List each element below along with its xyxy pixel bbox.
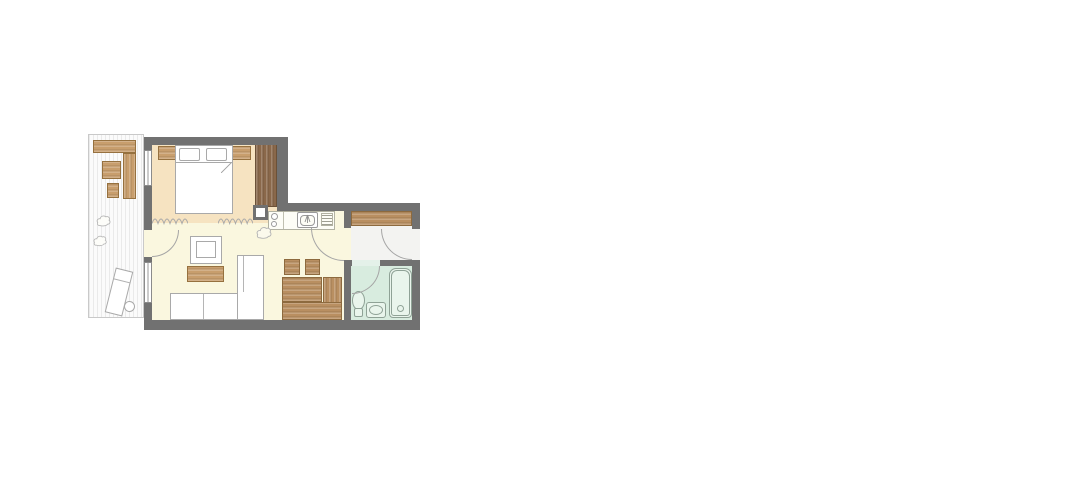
wall-hall-upper <box>344 211 351 228</box>
sofa-seat <box>170 293 238 320</box>
floorplan-canvas <box>0 0 1070 477</box>
balcony-side-unit <box>123 153 136 199</box>
wall-bottom <box>144 320 420 330</box>
pillow-right <box>206 148 227 161</box>
dining-bench-bottom <box>282 302 342 320</box>
hall-door-threshold <box>344 228 351 261</box>
sofa-cushion-line <box>203 294 204 319</box>
service-column-shaft <box>256 208 265 217</box>
plant-icon <box>96 214 112 228</box>
bedroom-wardrobe <box>255 144 277 207</box>
wall-hall-lower <box>344 261 351 320</box>
dining-chair <box>284 259 300 275</box>
dining-chair <box>305 259 320 275</box>
plant-icon <box>256 225 273 241</box>
lounger-headrest-line <box>114 278 130 283</box>
chaise-cushion-line <box>243 256 244 292</box>
wall-bath-divider-right <box>380 260 412 266</box>
wall-left-upper <box>144 137 152 150</box>
duvet-fold <box>221 162 232 173</box>
lounger-side-table <box>124 301 135 312</box>
wall-bedroom-right <box>277 145 288 203</box>
curtain-divider-left <box>152 217 188 225</box>
dining-table <box>282 277 322 302</box>
dish-drainer <box>321 213 333 226</box>
hall-wardrobe <box>351 211 412 226</box>
curtain-divider-right <box>218 217 253 225</box>
coffee-table <box>187 266 224 282</box>
armchair-seat <box>196 241 216 258</box>
counter-divider <box>283 212 284 229</box>
cooktop-burner <box>271 213 278 220</box>
wall-top-right-section <box>277 203 420 211</box>
bathtub-drain <box>397 305 404 312</box>
entrance-door-threshold <box>412 229 420 260</box>
wall-right-upper <box>412 211 420 229</box>
wall-top-bedroom <box>144 137 288 145</box>
sofa-chaise <box>237 255 264 320</box>
wall-left-mid <box>144 186 152 230</box>
living-room-window <box>144 262 152 303</box>
balcony-table <box>102 161 121 179</box>
bedroom-window <box>144 150 152 186</box>
balcony-stool <box>107 183 119 198</box>
balcony-door-threshold <box>144 230 152 257</box>
plant-icon <box>93 234 108 248</box>
balcony-bench <box>93 140 136 153</box>
washbasin-bowl <box>369 305 383 315</box>
toilet-base <box>354 308 363 317</box>
sink-tap-icon <box>304 214 311 224</box>
wall-bath-divider-left <box>344 260 352 266</box>
pillow-left <box>179 148 200 161</box>
